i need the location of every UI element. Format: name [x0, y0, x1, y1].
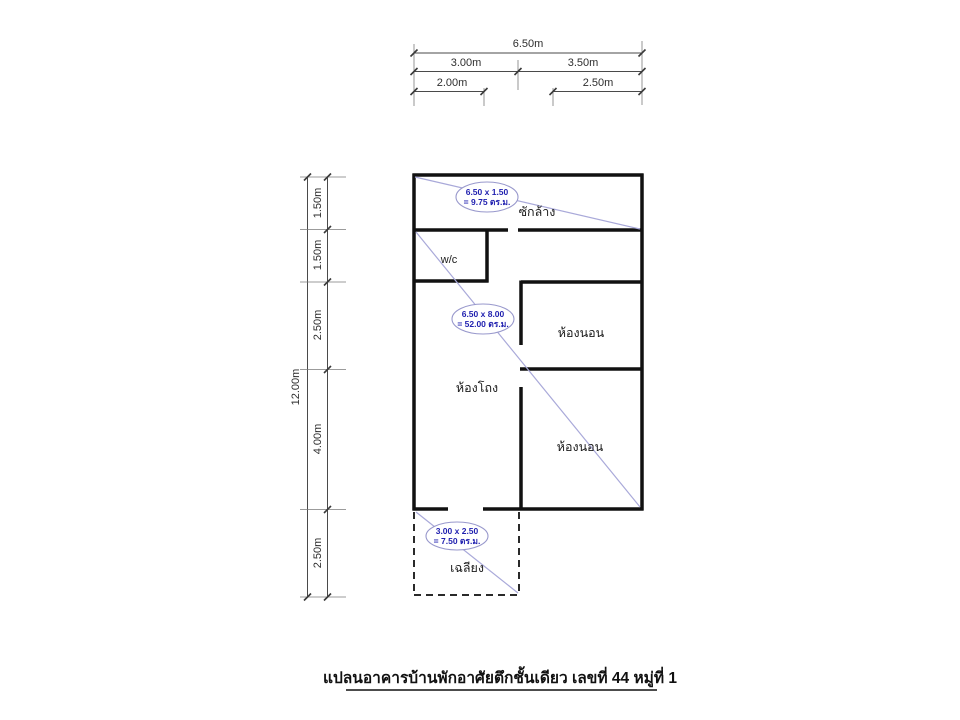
dim-label-total-height: 12.00m [290, 369, 302, 406]
dim-label-seg5: 2.50m [312, 538, 324, 569]
title-group: แปลนอาคารบ้านพักอาศัยตึกชั้นเดียว เลขที่… [323, 666, 677, 690]
main-area-formula: 6.50 x 8.00 [462, 309, 505, 319]
porch-area-formula: 3.00 x 2.50 [436, 526, 479, 536]
dim-label-seg2: 1.50m [312, 240, 324, 271]
top-dimension-group: 6.50m 3.00m 3.50m 2.00m 2.50m [411, 38, 646, 106]
room-label-laundry: ซักล้าง [519, 205, 556, 219]
room-label-bedroom-bottom: ห้องนอน [557, 440, 604, 454]
dim-label-sub-right: 2.50m [583, 77, 614, 89]
dim-label-left-half: 3.00m [451, 57, 482, 69]
tick-marks [304, 174, 331, 601]
room-label-porch: เฉลียง [450, 561, 484, 575]
area-callouts-group: 6.50 x 1.50 = 9.75 ตร.ม. 6.50 x 8.00 = 5… [426, 182, 518, 550]
floor-plan-drawing: 6.50m 3.00m 3.50m 2.00m 2.50m 12.00m 1.5 [0, 0, 960, 720]
plan-title: แปลนอาคารบ้านพักอาศัยตึกชั้นเดียว เลขที่… [323, 666, 677, 689]
room-label-bedroom-top: ห้องนอน [558, 326, 605, 340]
dim-label-right-half: 3.50m [568, 57, 599, 69]
laundry-diagonal-line [415, 177, 640, 229]
room-label-toilet: w/c [440, 254, 458, 266]
dim-label-seg3: 2.50m [312, 310, 324, 341]
dim-label-total-width: 6.50m [513, 38, 544, 50]
walls-group [413, 174, 644, 511]
dim-label-seg1: 1.50m [312, 188, 324, 219]
laundry-area-formula: 6.50 x 1.50 [466, 187, 509, 197]
dim-label-sub-left: 2.00m [437, 77, 468, 89]
room-label-hall: ห้องโถง [456, 380, 498, 395]
dim-label-seg4: 4.00m [312, 424, 324, 455]
laundry-area-value: = 9.75 ตร.ม. [464, 197, 511, 207]
left-dimension-group: 12.00m 1.50m 1.50m 2.50m 4.00m 2.50m [290, 174, 346, 601]
porch-area-value: = 7.50 ตร.ม. [434, 536, 481, 546]
main-area-value: = 52.00 ตร.ม. [457, 319, 508, 329]
floor-plan-page: 6.50m 3.00m 3.50m 2.00m 2.50m 12.00m 1.5 [0, 0, 960, 720]
